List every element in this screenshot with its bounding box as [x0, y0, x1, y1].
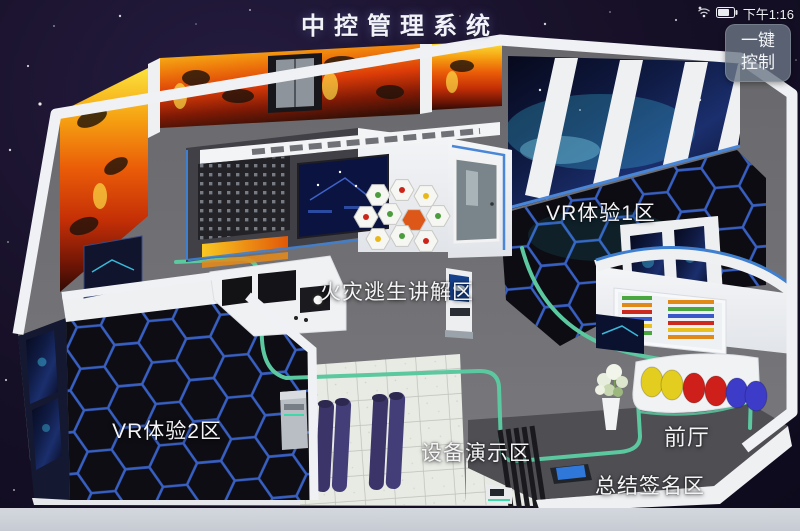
vr2-left-wall [18, 318, 70, 500]
zone-label-front-hall: 前厅 [664, 420, 710, 452]
central-control-app: 中控管理系统 下午1:16 一键 控制 VR体验1区 火灾逃生讲解区 VR体验2… [0, 0, 800, 531]
zone-label-fire-escape: 火灾逃生讲解区 [320, 276, 474, 306]
bottom-strip [0, 508, 800, 531]
one-key-control-button[interactable]: 一键 控制 [725, 24, 791, 82]
wifi-icon [697, 6, 711, 21]
zone-label-vr-zone-2: VR体验2区 [112, 415, 222, 445]
dotted-panel [198, 156, 290, 240]
status-bar: 下午1:16 [697, 4, 794, 23]
equipment-cabinet [280, 390, 308, 450]
zone-label-summary-signature: 总结签名区 [595, 470, 705, 500]
page-title: 中控管理系统 [0, 6, 800, 41]
zone-label-equipment-demo: 设备演示区 [421, 437, 531, 467]
battery-icon [716, 6, 738, 21]
status-time: 下午1:16 [743, 4, 794, 23]
zone-label-vr-zone-1: VR体验1区 [546, 197, 656, 227]
hall-side-screen [596, 314, 644, 354]
elevator [268, 53, 322, 113]
door [455, 158, 498, 242]
